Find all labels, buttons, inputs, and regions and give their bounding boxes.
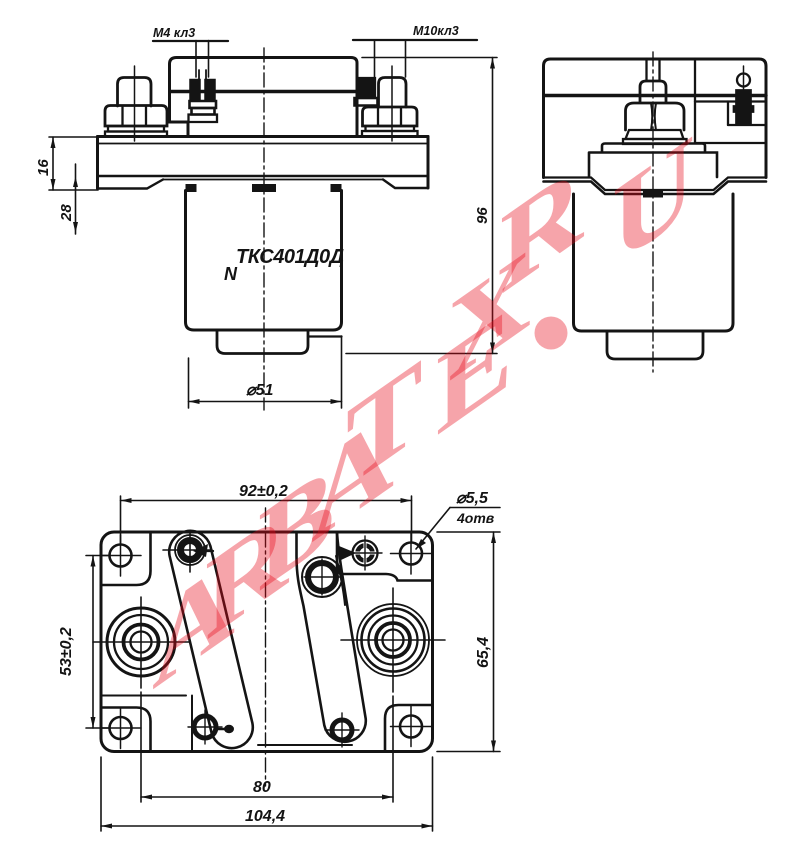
svg-text:96: 96 <box>474 207 491 224</box>
svg-text:80: 80 <box>253 779 271 796</box>
svg-text:28: 28 <box>58 204 75 222</box>
svg-text:4отв: 4отв <box>456 510 495 526</box>
svg-text:T: T <box>346 332 423 513</box>
svg-text:М10кл3: М10кл3 <box>413 24 459 38</box>
svg-text:⌀51: ⌀51 <box>246 382 274 399</box>
svg-text:⌀5,5: ⌀5,5 <box>456 490 489 507</box>
svg-text:65,4: 65,4 <box>475 637 492 668</box>
svg-text:N: N <box>224 264 238 284</box>
svg-text:16: 16 <box>35 159 52 176</box>
svg-text:104,4: 104,4 <box>245 808 285 825</box>
svg-text:М4 кл3: М4 кл3 <box>153 26 195 40</box>
svg-text:ТКС401Д0Д: ТКС401Д0Д <box>236 246 344 268</box>
svg-text:53±0,2: 53±0,2 <box>58 627 75 676</box>
